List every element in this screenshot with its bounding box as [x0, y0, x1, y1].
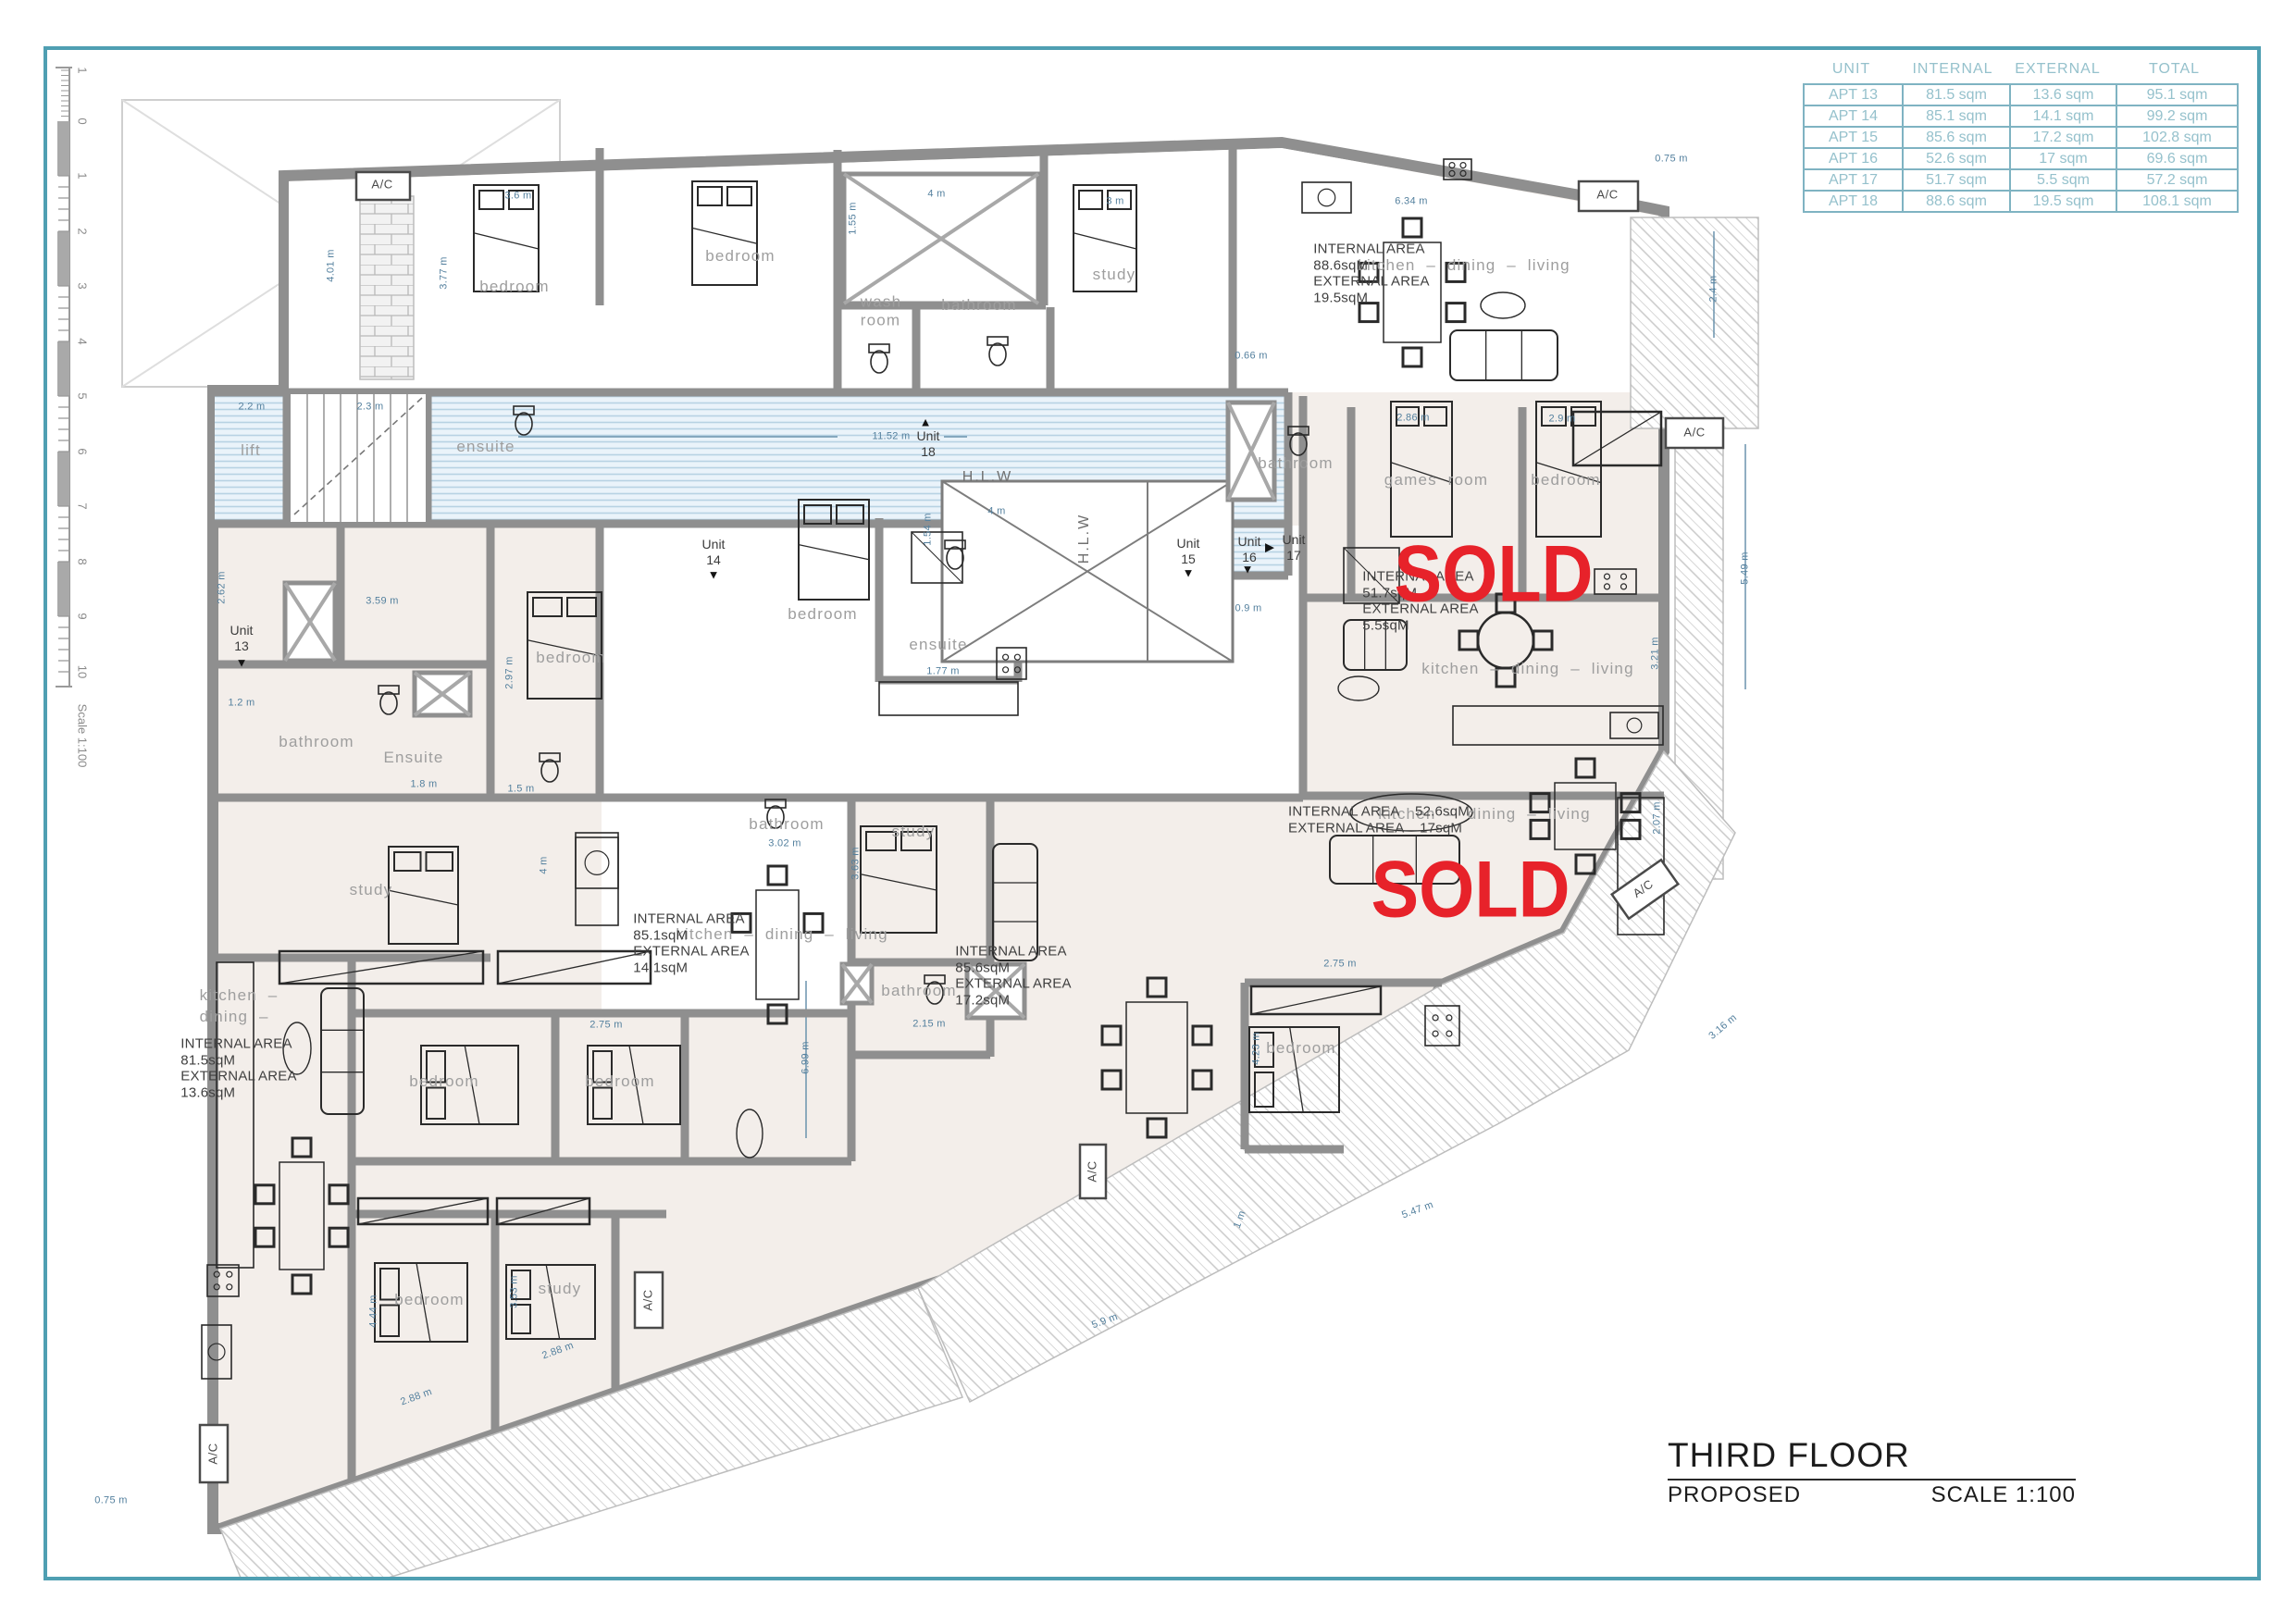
area-table-cell: APT 17	[1805, 170, 1902, 190]
dimension-label: 2.2 m	[238, 402, 265, 414]
dimension-label: 2.75 m	[1323, 959, 1356, 971]
area-table-cell: 14.1 sqm	[2009, 106, 2116, 126]
room-label: wash room	[861, 292, 902, 328]
area-table-cell: 69.6 sqm	[2116, 149, 2237, 168]
dimension-label: 5.49 m	[1740, 551, 1752, 584]
room-label: study	[539, 1280, 582, 1298]
ruler-number: 9	[75, 613, 89, 619]
room-label: bedroom	[1266, 1039, 1336, 1058]
area-table-cell: 88.6 sqm	[1902, 192, 2009, 211]
unit-arrow-icon: ▼	[1242, 564, 1254, 577]
ac-unit-label: A/C	[1086, 1160, 1100, 1182]
area-table-row: APT 1381.5 sqm13.6 sqm95.1 sqm	[1805, 85, 2237, 105]
area-table-cell: APT 13	[1805, 85, 1902, 105]
unit-arrow-icon: ▼	[1183, 567, 1195, 581]
area-table-cell: 13.6 sqm	[2009, 85, 2116, 105]
unit-label: Unit 13	[230, 623, 254, 654]
room-label: kitchen – dining –	[200, 985, 279, 1028]
dimension-label: 3 m	[1106, 196, 1123, 208]
room-label: study	[350, 881, 393, 899]
ac-unit-label: A/C	[207, 1443, 221, 1464]
dimension-label: 3.02 m	[768, 838, 800, 850]
unit-arrow-icon: ▼	[236, 657, 248, 671]
dimension-label: 2.4 m	[1708, 275, 1720, 302]
dimension-label: 1.77 m	[926, 666, 959, 678]
ruler-number: 1	[75, 67, 89, 73]
sold-stamp: SOLD	[1394, 529, 1593, 621]
area-stats-label: INTERNAL AREA 52.6sqM EXTERNAL AREA 17sq…	[1288, 803, 1470, 836]
room-label: lift	[241, 441, 261, 460]
dimension-label: 3.21 m	[1650, 637, 1662, 669]
unit-arrow-icon: ▶	[1265, 541, 1274, 555]
room-label: study	[1093, 266, 1136, 284]
dimension-label: 0.9 m	[1235, 603, 1261, 615]
ruler-number: 8	[75, 558, 89, 564]
sheet-scale: SCALE 1:100	[1931, 1482, 2076, 1508]
area-stats-label: INTERNAL AREA 85.1sqM EXTERNAL AREA 14.1…	[633, 911, 749, 977]
title-rule	[1668, 1479, 2076, 1481]
dimension-label: 4.23 m	[1251, 1032, 1263, 1064]
lightwell-label: H.L.W	[1076, 514, 1093, 564]
area-stats-label: INTERNAL AREA 88.6sqM EXTERNAL AREA 19.5…	[1313, 242, 1429, 307]
dimension-label: 0.66 m	[1235, 351, 1267, 363]
col-header-internal: INTERNAL	[1900, 61, 2005, 78]
ruler-number: 6	[75, 448, 89, 454]
room-label: bathroom	[1258, 454, 1333, 473]
dimension-label: 0.75 m	[1655, 154, 1687, 166]
area-table-cell: 102.8 sqm	[2116, 128, 2237, 147]
room-label: bedroom	[705, 247, 776, 266]
dimension-label: 3.63 m	[850, 847, 863, 879]
area-table-cell: 52.6 sqm	[1902, 149, 2009, 168]
room-label: study	[892, 823, 936, 841]
col-header-unit: UNIT	[1803, 61, 1900, 78]
floor-plan-sheet: UNIT INTERNAL EXTERNAL TOTAL APT 1381.5 …	[0, 0, 2296, 1623]
area-table-cell: 19.5 sqm	[2009, 192, 2116, 211]
area-table-row: APT 1585.6 sqm17.2 sqm102.8 sqm	[1805, 126, 2237, 147]
ruler-number: 10	[75, 665, 89, 678]
ruler-number: 4	[75, 338, 89, 344]
dimension-label: 2.97 m	[504, 656, 516, 688]
dimension-label: 2.9 m	[1548, 414, 1575, 426]
dimension-label: 1.2 m	[228, 698, 254, 710]
dimension-label: 4 m	[539, 856, 551, 873]
area-table-cell: APT 14	[1805, 106, 1902, 126]
dimension-label: 3.77 m	[439, 256, 451, 289]
room-label: bedroom	[1531, 471, 1601, 489]
area-stats-label: INTERNAL AREA 81.5sqM EXTERNAL AREA 13.6…	[180, 1036, 296, 1102]
scale-ruler	[56, 68, 72, 687]
area-table-cell: APT 16	[1805, 149, 1902, 168]
room-label: Ensuite	[383, 749, 443, 767]
dimension-label: 2.86 m	[1396, 413, 1429, 425]
room-label: bathroom	[279, 733, 354, 751]
unit-arrow-icon: ▲	[920, 416, 932, 430]
room-label: bedroom	[788, 605, 858, 624]
area-table-cell: 5.5 sqm	[2009, 170, 2116, 190]
dimension-label: 3.53 m	[509, 1275, 521, 1307]
room-label: bathroom	[881, 982, 956, 1000]
area-table-row: APT 1888.6 sqm19.5 sqm108.1 sqm	[1805, 190, 2237, 211]
area-table-cell: 85.1 sqm	[1902, 106, 2009, 126]
dimension-label: 6.34 m	[1395, 196, 1427, 208]
room-label: bedroom	[479, 278, 550, 296]
ac-unit-label: A/C	[1683, 427, 1705, 440]
dimension-label: 1.8 m	[410, 779, 437, 791]
room-label: bedroom	[585, 1072, 655, 1091]
dimension-label: 6.99 m	[800, 1041, 813, 1073]
area-table-cell: 57.2 sqm	[2116, 170, 2237, 190]
ac-unit-label: A/C	[642, 1289, 656, 1310]
apartment-area-table: UNIT INTERNAL EXTERNAL TOTAL APT 1381.5 …	[1803, 56, 2239, 213]
unit-label: Unit 17	[1283, 532, 1306, 564]
area-table-cell: 17.2 sqm	[2009, 128, 2116, 147]
area-table-header: UNIT INTERNAL EXTERNAL TOTAL	[1803, 56, 2239, 83]
dimension-label: 2.62 m	[217, 571, 229, 603]
dimension-label: 0.75 m	[94, 1495, 127, 1507]
dimension-label: 3.59 m	[366, 596, 398, 608]
room-label: ensuite	[909, 636, 967, 654]
area-table-cell: 51.7 sqm	[1902, 170, 2009, 190]
dimension-label: 1.55 m	[848, 202, 860, 234]
area-table-row: APT 1652.6 sqm17 sqm69.6 sqm	[1805, 147, 2237, 168]
ruler-number: 2	[75, 228, 89, 234]
unit-label: Unit 16	[1238, 534, 1261, 565]
area-table-body: APT 1381.5 sqm13.6 sqm95.1 sqmAPT 1485.1…	[1803, 83, 2239, 213]
ac-unit-label: A/C	[1596, 189, 1618, 203]
dimension-label: 1.5 m	[507, 784, 534, 796]
room-label: kitchen – dining – living	[1421, 660, 1633, 678]
ruler-number: 1	[75, 172, 89, 179]
area-table-row: APT 1751.7 sqm5.5 sqm57.2 sqm	[1805, 168, 2237, 190]
area-table-cell: 85.6 sqm	[1902, 128, 2009, 147]
area-table-cell: 81.5 sqm	[1902, 85, 2009, 105]
floor-plan-drawing	[0, 0, 2296, 1623]
dimension-label: 11.52 m	[872, 431, 910, 443]
area-table-cell: 17 sqm	[2009, 149, 2116, 168]
sold-stamp: SOLD	[1371, 845, 1570, 936]
room-label: bedroom	[536, 649, 606, 667]
dimension-label: 2.75 m	[590, 1020, 622, 1032]
sheet-status: PROPOSED	[1668, 1482, 1801, 1508]
dimension-label: 2.15 m	[912, 1019, 945, 1031]
area-stats-label: INTERNAL AREA 85.6sqM EXTERNAL AREA 17.2…	[955, 944, 1071, 1010]
dimension-label: 4.01 m	[326, 249, 338, 281]
dimension-label: 4 m	[987, 506, 1005, 518]
unit-label: Unit 18	[917, 428, 940, 460]
area-table-cell: 99.2 sqm	[2116, 106, 2237, 126]
title-block: THIRD FLOOR PROPOSED SCALE 1:100	[1668, 1436, 2076, 1508]
ruler-number: 0	[75, 118, 89, 124]
dimension-label: 2.3 m	[356, 402, 383, 414]
ruler-number: 7	[75, 502, 89, 509]
ruler-scale-label: Scale 1:100	[75, 704, 89, 768]
dimension-label: 2.07 m	[1652, 801, 1664, 834]
area-table-row: APT 1485.1 sqm14.1 sqm99.2 sqm	[1805, 105, 2237, 126]
room-label: ensuite	[456, 438, 515, 456]
room-label: bedroom	[394, 1291, 465, 1309]
unit-label: Unit 14	[702, 537, 726, 568]
lightwell-label: H.L.W	[962, 469, 1012, 486]
area-table-cell: APT 18	[1805, 192, 1902, 211]
room-label: games room	[1384, 471, 1488, 489]
room-label: bathroom	[941, 296, 1016, 315]
area-table-cell: 95.1 sqm	[2116, 85, 2237, 105]
dimension-label: 1.54 m	[923, 513, 935, 545]
dimension-label: 3.6 m	[504, 191, 531, 203]
col-header-external: EXTERNAL	[2005, 61, 2110, 78]
area-table-cell: APT 15	[1805, 128, 1902, 147]
unit-arrow-icon: ▼	[708, 569, 720, 583]
room-label: bedroom	[409, 1072, 479, 1091]
dimension-label: 4 m	[927, 189, 945, 201]
ruler-number: 3	[75, 282, 89, 289]
col-header-total: TOTAL	[2110, 61, 2239, 78]
sheet-title: THIRD FLOOR	[1668, 1436, 2076, 1475]
room-label: bathroom	[749, 815, 824, 834]
unit-label: Unit 15	[1177, 536, 1200, 567]
ruler-number: 5	[75, 392, 89, 399]
dimension-label: 4.44 m	[368, 1295, 380, 1327]
area-table-cell: 108.1 sqm	[2116, 192, 2237, 211]
ac-unit-label: A/C	[371, 179, 392, 192]
